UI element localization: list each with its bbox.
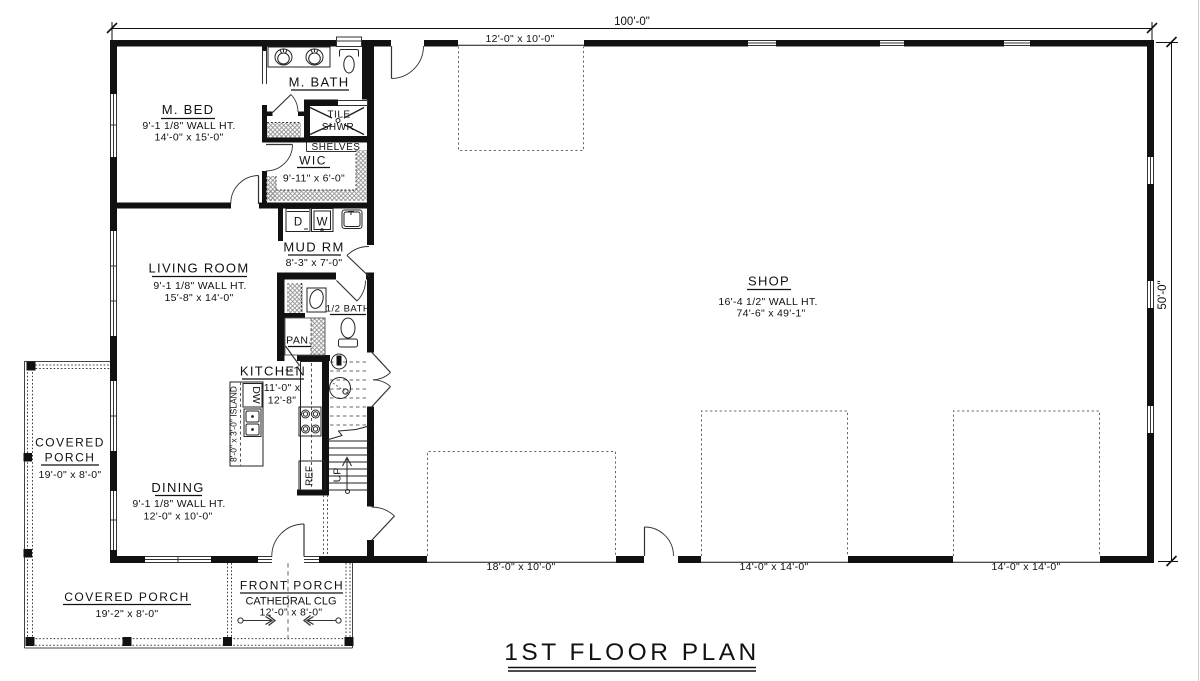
svg-text:M. BED: M. BED xyxy=(162,102,215,117)
svg-text:12'-0" x 10'-0": 12'-0" x 10'-0" xyxy=(143,511,212,523)
svg-text:LIVING ROOM: LIVING ROOM xyxy=(149,261,250,276)
svg-text:DINING: DINING xyxy=(151,480,204,495)
svg-text:9'-1 1/8" WALL HT.: 9'-1 1/8" WALL HT. xyxy=(142,120,235,132)
svg-text:19'-2" x 8'-0": 19'-2" x 8'-0" xyxy=(96,608,159,620)
svg-text:KITCHEN: KITCHEN xyxy=(240,364,306,379)
svg-text:50'-0": 50'-0" xyxy=(1157,280,1169,309)
svg-text:8'-3" x 7'-0": 8'-3" x 7'-0" xyxy=(286,257,343,269)
svg-text:1/2 BATH: 1/2 BATH xyxy=(326,304,370,315)
svg-text:15'-8" x 14'-0": 15'-8" x 14'-0" xyxy=(164,292,233,304)
svg-text:MUD RM: MUD RM xyxy=(283,240,344,255)
svg-text:UP: UP xyxy=(332,468,344,483)
svg-text:DW: DW xyxy=(250,386,262,404)
svg-text:14'-0" x 14'-0": 14'-0" x 14'-0" xyxy=(739,561,808,573)
svg-text:D: D xyxy=(294,217,302,229)
svg-text:SHELVES: SHELVES xyxy=(312,142,361,153)
svg-text:14'-0" x 14'-0": 14'-0" x 14'-0" xyxy=(991,561,1060,573)
svg-text:9'-11" x 6'-0": 9'-11" x 6'-0" xyxy=(283,173,345,185)
svg-text:COVERED PORCH: COVERED PORCH xyxy=(64,590,190,604)
svg-text:1ST FLOOR PLAN: 1ST FLOOR PLAN xyxy=(504,639,760,666)
svg-text:REF: REF xyxy=(305,466,316,486)
svg-text:18'-0" x 10'-0": 18'-0" x 10'-0" xyxy=(486,561,555,573)
svg-text:11'-0" x: 11'-0" x xyxy=(264,382,301,394)
svg-text:PAN.: PAN. xyxy=(286,335,312,347)
svg-text:9'-1 1/8" WALL HT.: 9'-1 1/8" WALL HT. xyxy=(153,280,246,292)
svg-text:16'-4 1/2" WALL HT.: 16'-4 1/2" WALL HT. xyxy=(718,296,817,308)
svg-text:12'-8": 12'-8" xyxy=(268,395,297,407)
svg-text:100'-0": 100'-0" xyxy=(614,16,650,28)
svg-text:14'-0" x 15'-0": 14'-0" x 15'-0" xyxy=(154,132,223,144)
svg-text:W: W xyxy=(317,217,328,229)
svg-text:M. BATH: M. BATH xyxy=(289,75,350,90)
svg-text:SHWR: SHWR xyxy=(322,122,355,133)
svg-text:9'-1 1/8" WALL HT.: 9'-1 1/8" WALL HT. xyxy=(132,498,225,510)
svg-text:74'-6" x 49'-1": 74'-6" x 49'-1" xyxy=(736,308,805,320)
svg-text:19'-0" x 8'-0": 19'-0" x 8'-0" xyxy=(39,469,102,481)
svg-text:8'-0" x 3'-0" ISLAND: 8'-0" x 3'-0" ISLAND xyxy=(229,386,239,462)
svg-text:TILE: TILE xyxy=(327,110,350,121)
svg-text:SHOP: SHOP xyxy=(748,274,790,289)
svg-text:FRONT PORCH: FRONT PORCH xyxy=(240,579,344,593)
svg-text:12'-0" x 8'-0": 12'-0" x 8'-0" xyxy=(260,607,323,619)
svg-text:COVERED: COVERED xyxy=(35,436,105,450)
svg-text:12'-0" x 10'-0": 12'-0" x 10'-0" xyxy=(485,33,554,45)
svg-text:PORCH: PORCH xyxy=(45,451,96,465)
svg-text:WIC: WIC xyxy=(299,154,327,168)
